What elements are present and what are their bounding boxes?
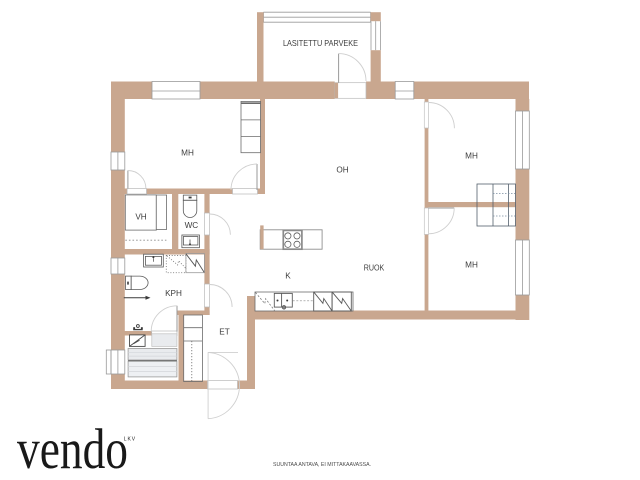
svg-text:LKV: LKV [124, 436, 136, 442]
svg-text:MH: MH [465, 261, 478, 270]
svg-text:K: K [285, 272, 291, 281]
svg-text:vendo: vendo [17, 418, 128, 480]
svg-text:KPH: KPH [165, 289, 182, 298]
svg-text:OH: OH [336, 166, 348, 175]
svg-text:VH: VH [135, 213, 146, 222]
svg-text:ET: ET [219, 328, 229, 337]
svg-text:MH: MH [181, 149, 194, 158]
svg-text:MH: MH [465, 152, 478, 161]
svg-text:RUOK: RUOK [364, 264, 385, 273]
svg-text:SUUNTAA ANTAVA, EI MITTAKAAVAS: SUUNTAA ANTAVA, EI MITTAKAAVASSA. [273, 462, 371, 468]
svg-text:WC: WC [185, 221, 199, 230]
svg-text:LASITETTU PARVEKE: LASITETTU PARVEKE [283, 39, 358, 48]
